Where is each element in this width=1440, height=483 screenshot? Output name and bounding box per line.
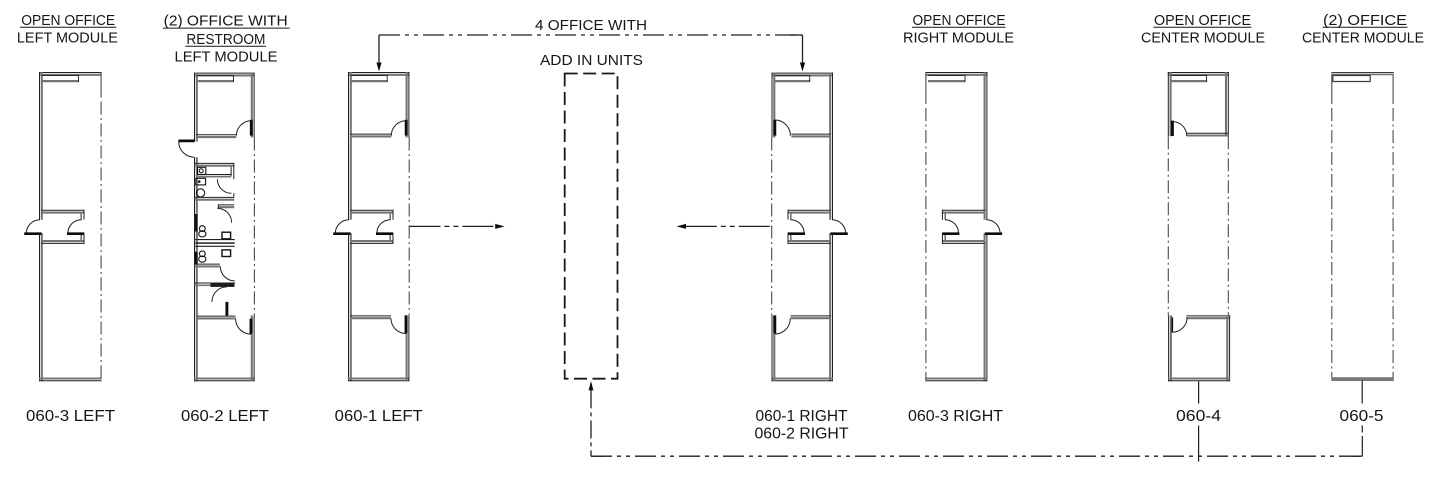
svg-text:RESTROOM: RESTROOM xyxy=(186,32,265,48)
svg-text:CENTER MODULE: CENTER MODULE xyxy=(1141,30,1265,46)
svg-text:ADD IN UNITS: ADD IN UNITS xyxy=(540,52,643,69)
svg-text:060-3 LEFT: 060-3 LEFT xyxy=(26,408,116,425)
svg-text:060-1 RIGHT: 060-1 RIGHT xyxy=(756,408,849,425)
svg-text:4 OFFICE WITH: 4 OFFICE WITH xyxy=(535,17,647,34)
svg-text:LEFT MODULE: LEFT MODULE xyxy=(17,30,118,46)
svg-text:060-5: 060-5 xyxy=(1340,408,1384,425)
svg-text:LEFT MODULE: LEFT MODULE xyxy=(175,50,278,66)
svg-text:RIGHT MODULE: RIGHT MODULE xyxy=(903,30,1014,46)
svg-text:060-2 RIGHT: 060-2 RIGHT xyxy=(755,425,850,442)
svg-text:(2) OFFICE WITH: (2) OFFICE WITH xyxy=(164,14,288,30)
svg-text:060-1 LEFT: 060-1 LEFT xyxy=(335,408,424,425)
svg-text:060-3 RIGHT: 060-3 RIGHT xyxy=(908,408,1004,425)
svg-text:060-2 LEFT: 060-2 LEFT xyxy=(181,408,270,425)
svg-text:060-4: 060-4 xyxy=(1176,408,1221,425)
svg-text:CENTER MODULE: CENTER MODULE xyxy=(1302,30,1424,46)
